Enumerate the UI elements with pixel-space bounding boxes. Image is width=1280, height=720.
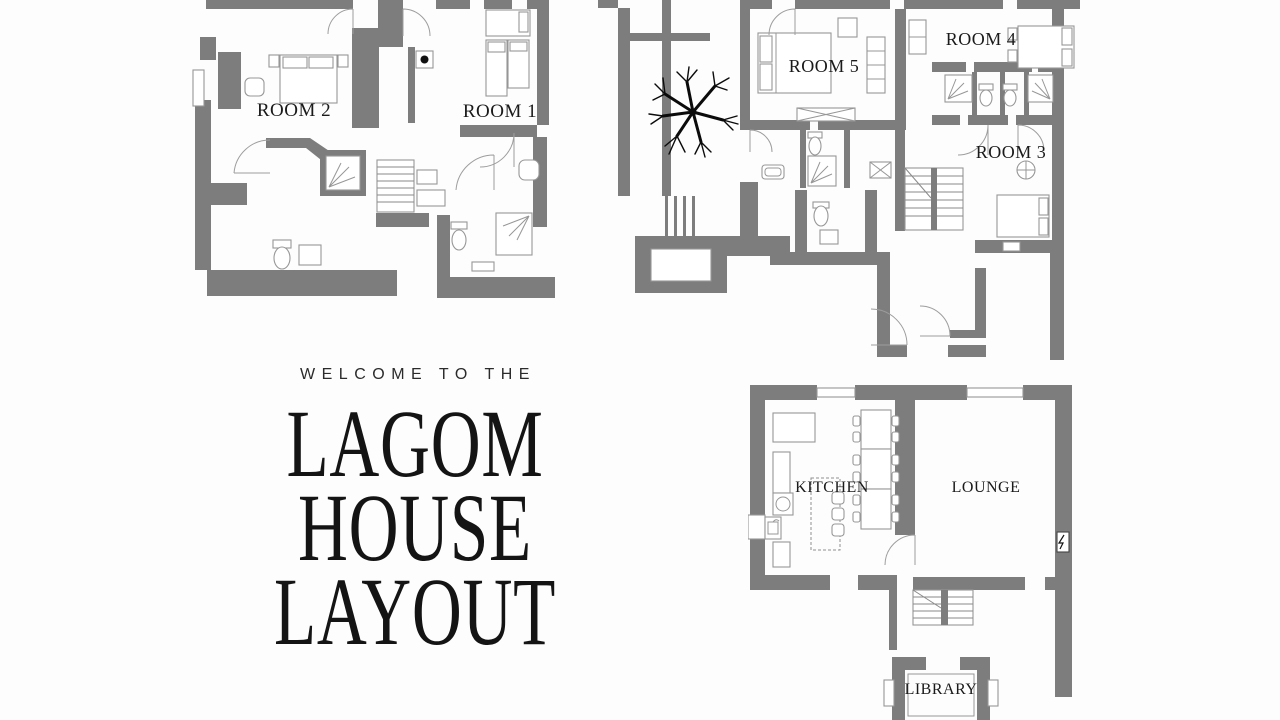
window-icon <box>884 680 894 706</box>
single-beds-icon <box>486 10 530 96</box>
page-title: LAGOM HOUSE LAYOUT <box>215 402 615 654</box>
sink-icon <box>765 517 781 539</box>
desk-icon <box>417 190 445 206</box>
window-icon <box>817 388 855 397</box>
window-slots <box>193 70 204 106</box>
room-label-library: LIBRARY <box>905 681 978 698</box>
room-label-room2: ROOM 2 <box>257 100 331 121</box>
wardrobe-icon <box>797 108 855 121</box>
room-label-room3: ROOM 3 <box>976 142 1047 162</box>
chair-icon <box>519 160 539 180</box>
toilet-icon <box>979 84 993 106</box>
toilet-icon <box>451 222 467 250</box>
oven-icon <box>773 493 793 515</box>
stool-icon <box>832 524 844 536</box>
stool-icon <box>832 508 844 520</box>
title-line-3: LAYOUT <box>271 570 559 654</box>
shower-icon <box>326 156 360 190</box>
room-label-kitchen: KITCHEN <box>795 479 869 496</box>
chair-icon <box>245 78 264 96</box>
shower-icon <box>808 156 836 186</box>
armchair-icon <box>838 18 857 37</box>
shower-icon <box>496 213 532 255</box>
bench-icon <box>472 262 494 271</box>
counter-icon <box>773 413 815 442</box>
dining-tables-icon <box>853 410 899 529</box>
counter-icon <box>773 452 790 493</box>
shower-icon <box>1028 75 1053 102</box>
double-bed-icon <box>269 55 348 103</box>
double-bed-icon <box>997 195 1049 237</box>
counter-icon <box>773 542 790 567</box>
shelf-icon <box>867 37 885 93</box>
toilet-icon <box>1003 84 1017 106</box>
wardrobe-icon <box>909 20 926 54</box>
floor-plan-upper-right: ROOM 5 ROOM 4 ROOM 3 <box>598 0 1084 362</box>
double-bed-icon <box>1008 26 1074 68</box>
toilet-icon <box>808 132 822 155</box>
floor-plan-ground: KITCHEN LOUNGE LIBRARY <box>748 382 1078 720</box>
window-icon <box>967 388 1023 397</box>
room-label-room4: ROOM 4 <box>946 29 1017 49</box>
floor-plan-upper-left: ROOM 2 ROOM 1 <box>189 0 585 300</box>
cabinet-icon <box>820 230 838 244</box>
ceiling-light-icon <box>1017 161 1035 179</box>
room-label-lounge: LOUNGE <box>952 479 1021 496</box>
fixture-icon <box>416 51 433 68</box>
furniture <box>765 410 1069 716</box>
wardrobe-icon <box>870 162 891 178</box>
stairs <box>913 590 973 625</box>
stairs <box>905 168 963 230</box>
room-label-room5: ROOM 5 <box>789 56 860 76</box>
cabinet-icon <box>299 245 321 265</box>
poster-canvas: ROOM 2 ROOM 1 <box>0 0 1280 720</box>
desk-icon <box>417 170 437 184</box>
welcome-eyebrow: WELCOME TO THE <box>230 366 600 384</box>
window-icon <box>988 680 998 706</box>
stairs <box>377 160 414 212</box>
room-label-room1: ROOM 1 <box>463 101 537 122</box>
toilet-icon <box>813 202 829 226</box>
doors <box>885 535 915 565</box>
toilet-icon <box>273 240 291 269</box>
wall-socket-icon <box>1057 532 1069 552</box>
bathtub-icon <box>762 165 784 179</box>
shower-icon <box>945 75 972 102</box>
